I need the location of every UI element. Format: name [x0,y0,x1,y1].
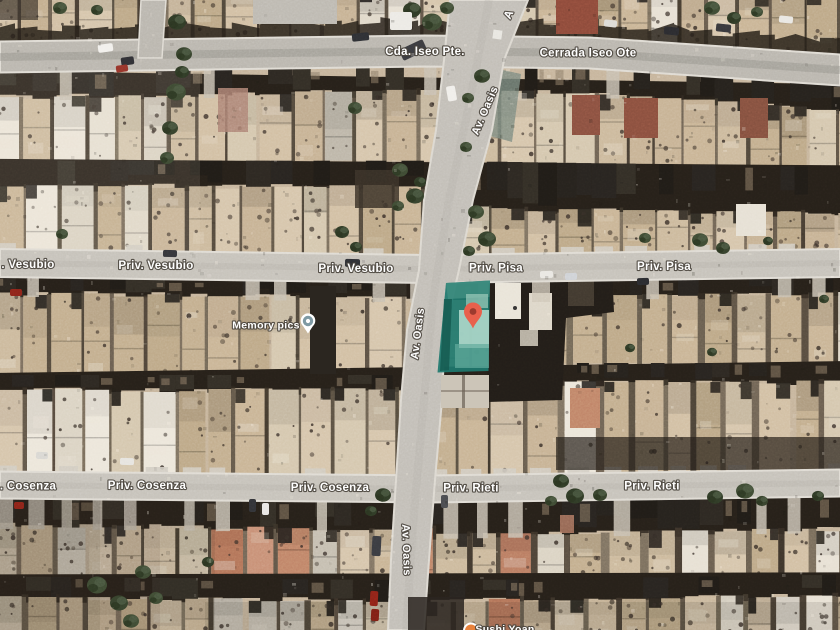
svg-text:. Cosenza: . Cosenza [0,481,56,493]
svg-text:Priv. Pisa: Priv. Pisa [637,261,691,273]
svg-text:Sushi Yoan: Sushi Yoan [475,624,534,630]
svg-text:Cerrada Iseo Ote: Cerrada Iseo Ote [540,48,637,60]
svg-text:. Vesubio: . Vesubio [1,259,54,271]
svg-text:Av. Oasis: Av. Oasis [399,524,413,576]
svg-text:Priv. Pisa: Priv. Pisa [469,263,523,275]
svg-text:Priv. Cosenza: Priv. Cosenza [291,482,370,494]
svg-text:Priv. Rieti: Priv. Rieti [443,483,499,495]
svg-text:Cda. Iseo Pte.: Cda. Iseo Pte. [385,46,465,58]
svg-text:Priv. Vesubio: Priv. Vesubio [118,260,193,272]
svg-text:Priv. Vesubio: Priv. Vesubio [318,263,393,275]
svg-text:Priv. Rieti: Priv. Rieti [624,481,680,493]
svg-text:Memory pics: Memory pics [232,320,300,332]
svg-text:Priv. Cosenza: Priv. Cosenza [108,480,187,492]
